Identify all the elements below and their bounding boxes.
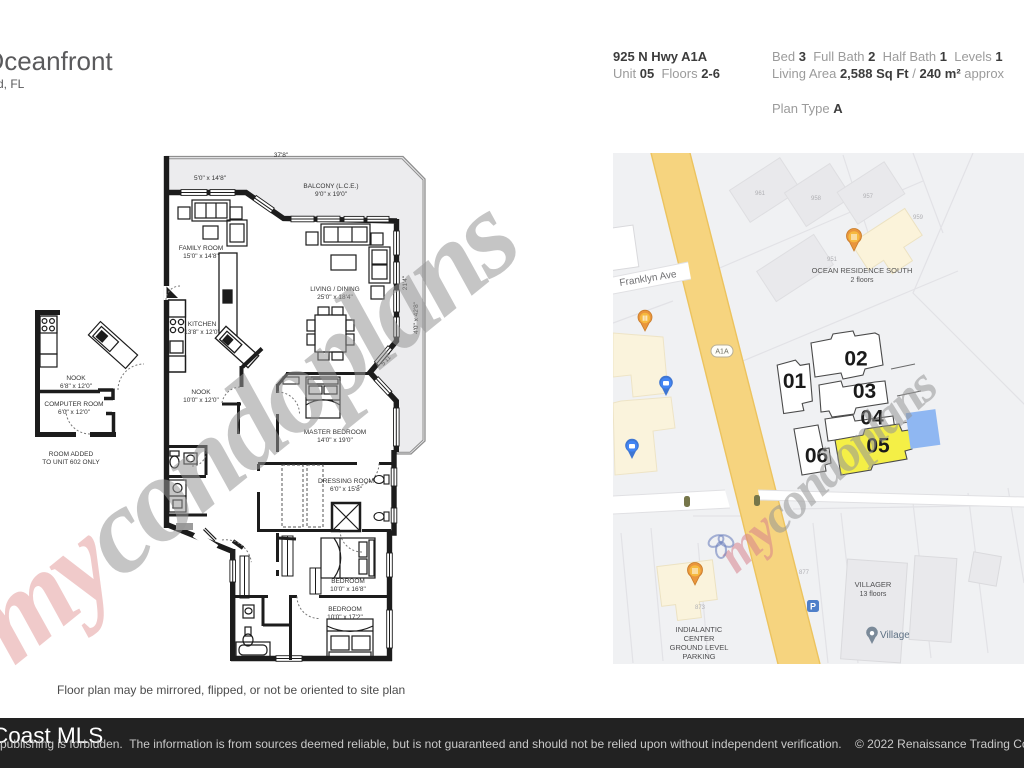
svg-text:6'0" x 12'0": 6'0" x 12'0" (58, 409, 91, 416)
svg-text:5'0" x 14'8": 5'0" x 14'8" (194, 175, 227, 182)
svg-text:873: 873 (695, 605, 706, 611)
svg-text:9'0" x 19'0": 9'0" x 19'0" (315, 191, 348, 198)
svg-text:FAMILY ROOM: FAMILY ROOM (179, 245, 224, 252)
svg-text:6'0" x 15'8": 6'0" x 15'8" (330, 486, 363, 493)
svg-text:25'0" x 18'4": 25'0" x 18'4" (317, 294, 353, 301)
svg-text:DRESSING ROOM: DRESSING ROOM (318, 478, 374, 485)
svg-text:37'8": 37'8" (274, 152, 289, 159)
svg-text:14'0" x 19'0": 14'0" x 19'0" (317, 437, 353, 444)
svg-text:15'0" x 14'8": 15'0" x 14'8" (183, 253, 219, 260)
svg-text:2 floors: 2 floors (851, 277, 874, 284)
svg-text:10'0" x 12'0": 10'0" x 12'0" (183, 397, 219, 404)
svg-text:P: P (810, 602, 816, 612)
svg-text:GROUND LEVEL: GROUND LEVEL (670, 643, 729, 652)
svg-text:OCEAN RESIDENCE SOUTH: OCEAN RESIDENCE SOUTH (812, 266, 913, 275)
svg-text:KITCHEN: KITCHEN (188, 321, 217, 328)
svg-text:BALCONY (L.C.E.): BALCONY (L.C.E.) (303, 183, 358, 190)
svg-text:951: 951 (827, 257, 838, 263)
svg-text:NOOK: NOOK (66, 375, 86, 382)
svg-text:4'0" x 42'8": 4'0" x 42'8" (413, 301, 420, 334)
svg-text:961: 961 (755, 191, 766, 197)
svg-text:6'8" x 12'0": 6'8" x 12'0" (60, 383, 93, 390)
svg-text:CENTER: CENTER (684, 634, 715, 643)
svg-text:02: 02 (844, 348, 867, 371)
svg-text:BEDROOM: BEDROOM (328, 606, 362, 613)
svg-text:877: 877 (799, 570, 810, 576)
svg-text:21'4": 21'4" (402, 275, 409, 290)
svg-text:BEDROOM: BEDROOM (331, 578, 365, 585)
svg-text:958: 958 (811, 196, 822, 202)
svg-text:01: 01 (783, 370, 807, 393)
svg-text:INDIALANTIC: INDIALANTIC (676, 625, 723, 634)
svg-text:NOOK: NOOK (191, 389, 211, 396)
svg-text:A1A: A1A (715, 349, 729, 356)
svg-text:13'8" x 12'0": 13'8" x 12'0" (184, 329, 220, 336)
svg-text:LIVING / DINING: LIVING / DINING (310, 286, 359, 293)
svg-text:957: 957 (863, 194, 874, 200)
svg-text:13 floors: 13 floors (860, 591, 887, 598)
svg-text:ROOM ADDED: ROOM ADDED (49, 451, 94, 458)
svg-text:10'0" x 16'8": 10'0" x 16'8" (330, 586, 366, 593)
svg-text:MASTER BEDROOM: MASTER BEDROOM (304, 429, 366, 436)
svg-text:PARKING: PARKING (682, 652, 715, 661)
svg-text:COMPUTER ROOM: COMPUTER ROOM (44, 401, 103, 408)
svg-text:959: 959 (913, 215, 924, 221)
svg-text:TO UNIT 602 ONLY: TO UNIT 602 ONLY (42, 459, 100, 466)
svg-text:VILLAGER: VILLAGER (855, 580, 892, 589)
svg-text:10'0" x 17'2": 10'0" x 17'2" (327, 614, 363, 621)
